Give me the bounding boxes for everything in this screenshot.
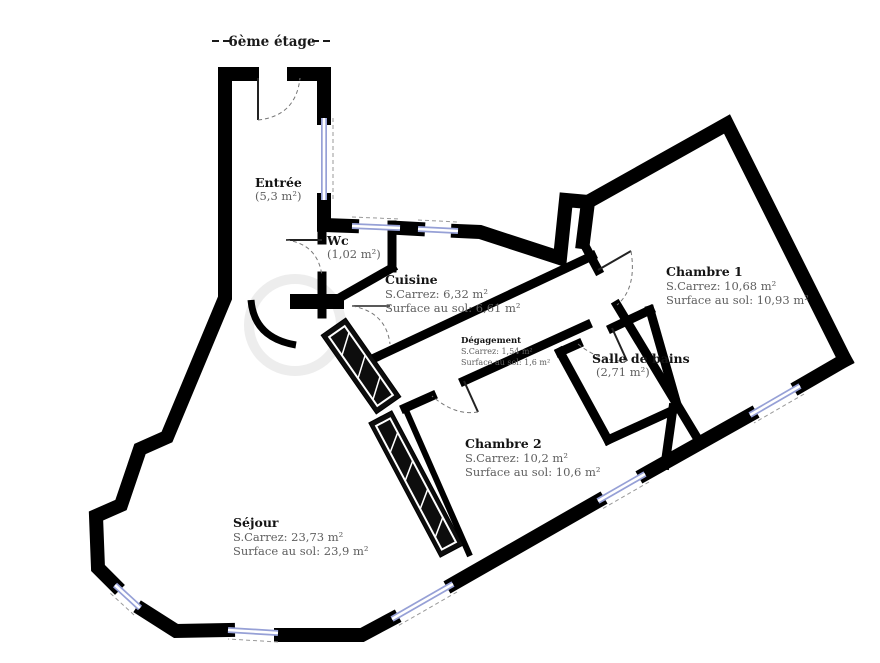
room-name: Dégagement [461, 335, 521, 346]
room-sol: Surface au sol: 6,61 m² [385, 301, 521, 315]
room-name: Cuisine [385, 272, 438, 287]
room-label-entree: Entrée (5,3 m²) [255, 175, 302, 203]
room-name: Séjour [233, 515, 279, 530]
room-name: Chambre 1 [666, 264, 743, 279]
room-name: Salle de bains [592, 351, 690, 366]
room-carrez: S.Carrez: 1,54 m² [461, 347, 533, 356]
kitchen-sliding-door [321, 318, 401, 414]
chambre2-door-leaf [464, 381, 478, 412]
room-label-chambre2: Chambre 2 S.Carrez: 10,2 m² Surface au s… [465, 436, 601, 479]
room-label-chambre1: Chambre 1 S.Carrez: 10,68 m² Surface au … [666, 264, 809, 307]
chambre1-door-leaf [598, 251, 631, 270]
wc-door-arc [286, 240, 322, 276]
entry-door-arc [258, 78, 300, 120]
hall-door-block [290, 294, 344, 309]
floor-title: 6ème étage [212, 34, 334, 50]
doors [251, 78, 632, 413]
room-area: (5,3 m²) [255, 189, 301, 203]
room-name: Chambre 2 [465, 436, 542, 451]
room-label-cuisine: Cuisine S.Carrez: 6,32 m² Surface au sol… [385, 272, 521, 315]
room-name: Entrée [255, 175, 302, 190]
room-label-salle-de-bains: Salle de bains (2,71 m²) [592, 351, 690, 379]
room-carrez: S.Carrez: 10,2 m² [465, 451, 568, 465]
room-name: Wc [326, 233, 349, 248]
floor-plan-page: 6ème étage Entrée (5,3 m²) Wc (1,02 m²) … [0, 0, 880, 663]
room-area: (2,71 m²) [596, 365, 650, 379]
room-sol: Surface au sol: 10,93 m² [666, 293, 809, 307]
floor-title-text: 6ème étage [228, 34, 315, 50]
chambre1-door-arc [617, 251, 632, 305]
room-sol: Surface au sol: 1,6 m² [461, 358, 550, 367]
windows [109, 118, 804, 642]
floor-plan-drawing: 6ème étage Entrée (5,3 m²) Wc (1,02 m²) … [0, 0, 880, 663]
room-carrez: S.Carrez: 10,68 m² [666, 279, 776, 293]
room-label-sejour: Séjour S.Carrez: 23,73 m² Surface au sol… [233, 515, 369, 558]
room-label-wc: Wc (1,02 m²) [326, 233, 381, 261]
room-carrez: S.Carrez: 23,73 m² [233, 530, 343, 544]
room-sol: Surface au sol: 23,9 m² [233, 544, 369, 558]
room-carrez: S.Carrez: 6,32 m² [385, 287, 488, 301]
room-area: (1,02 m²) [327, 247, 381, 261]
room-sol: Surface au sol: 10,6 m² [465, 465, 601, 479]
